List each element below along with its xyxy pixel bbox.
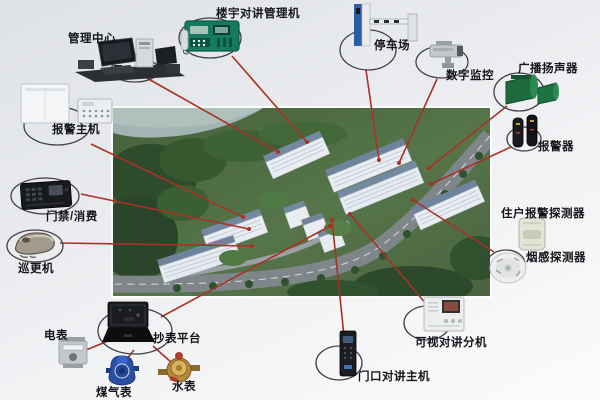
siren-icon [510, 114, 540, 150]
label-smoke-detector: 烟感探测器 [526, 249, 586, 265]
smoke-detector-icon [488, 250, 528, 286]
label-management-center: 管理中心 [68, 30, 116, 46]
indoor-monitor-icon [420, 296, 468, 336]
label-patrol-reader: 巡更机 [18, 260, 54, 276]
label-access-control: 门禁/消费 [46, 208, 98, 224]
label-water-meter: 水表 [172, 378, 196, 394]
label-door-intercom-host: 门口对讲主机 [358, 368, 430, 384]
patrol-reader-icon [10, 226, 60, 260]
label-parking-lot: 停车场 [374, 37, 410, 53]
label-digital-surveillance: 数字监控 [446, 67, 494, 83]
label-alarm-siren: 报警器 [538, 138, 574, 154]
label-video-intercom-extension: 可视对讲分机 [415, 334, 487, 350]
label-broadcast-speaker: 广播扬声器 [518, 60, 578, 76]
label-electric-meter: 电表 [44, 327, 68, 343]
intercom-manager-icon [180, 18, 242, 56]
aerial-view-residential-complex [113, 108, 490, 296]
label-building-intercom-manager: 楼宇对讲管理机 [216, 5, 300, 21]
label-gas-meter: 煤气表 [96, 384, 132, 400]
label-resident-alarm-detector: 住户报警探测器 [501, 205, 585, 221]
ptz-camera-icon [424, 38, 468, 70]
horn-speaker-icon [498, 70, 560, 110]
label-meter-reading-platform: 抄表平台 [153, 330, 201, 346]
door-station-icon [336, 330, 360, 378]
meter-platform-icon [100, 301, 155, 349]
diagram-canvas: 管理中心 楼宇对讲管理机 停车场 数字监控 广播扬声器 报警器 报警主机 门禁/… [0, 0, 600, 400]
label-alarm-host: 报警主机 [52, 121, 100, 137]
